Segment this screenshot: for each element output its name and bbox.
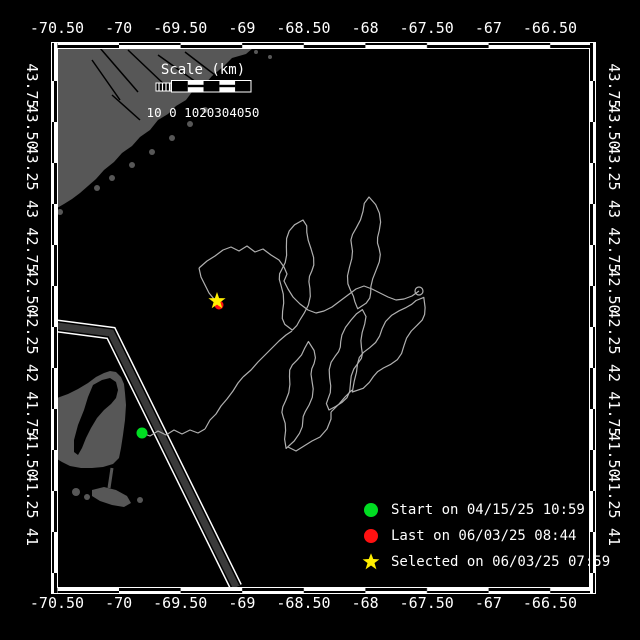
track-segment[interactable] [205, 377, 243, 429]
left-axis-label: 43.50 [23, 104, 41, 149]
scalebar-title: Scale (km) [150, 62, 256, 78]
drifter-track[interactable] [142, 197, 425, 451]
island [72, 488, 80, 496]
bottom-axis-label: -67 [475, 594, 502, 612]
left-axis-label: 42 [23, 364, 41, 382]
bottom-axis-label: -69.50 [153, 594, 207, 612]
island [94, 185, 100, 191]
top-axis-label: -69.50 [153, 19, 207, 37]
island [254, 50, 258, 54]
left-axis-label: 42.25 [23, 309, 41, 354]
track-loop[interactable] [282, 342, 316, 449]
island [109, 175, 115, 181]
legend-selected-label: Selected on 06/03/25 07:59 [391, 554, 610, 570]
right-axis-label: 42.25 [605, 309, 623, 354]
left-axis-label: 41 [23, 528, 41, 546]
bottom-axis-label: -70 [105, 594, 132, 612]
right-axis-label: 43.25 [605, 145, 623, 190]
top-axis-label: -70.50 [30, 19, 84, 37]
top-axis-label: -68.50 [276, 19, 330, 37]
legend-start-label: Start on 04/15/25 10:59 [391, 502, 585, 518]
island [84, 494, 90, 500]
right-axis-label: 43 [605, 200, 623, 218]
top-axis-label: -66.50 [523, 19, 577, 37]
track-segment[interactable] [199, 268, 217, 303]
track-segment[interactable] [288, 412, 331, 451]
left-axis-label: 42.50 [23, 268, 41, 313]
right-axis-label: 42 [605, 364, 623, 382]
left-axis-label: 41.50 [23, 432, 41, 477]
track-loop[interactable] [279, 220, 314, 330]
track-loop[interactable] [326, 310, 366, 410]
top-axis-label: -70 [105, 19, 132, 37]
left-axis-label: 43 [23, 200, 41, 218]
island [149, 149, 155, 155]
scalebar-hatch [156, 83, 171, 91]
left-axis-label: 43.25 [23, 145, 41, 190]
legend-row-last: Last on 06/03/25 08:44 [364, 523, 610, 549]
start-position-marker[interactable] [137, 428, 148, 439]
island [169, 135, 175, 141]
island [268, 55, 272, 59]
right-axis-label: 42.75 [605, 227, 623, 272]
top-axis-label: -69 [228, 19, 255, 37]
left-axis-label: 42.75 [23, 227, 41, 272]
top-axis-label: -67 [475, 19, 502, 37]
left-axis-label: 43.75 [23, 63, 41, 108]
right-axis-label: 41.75 [605, 391, 623, 436]
island [187, 121, 193, 127]
island-arm [92, 487, 131, 507]
legend-last-label: Last on 06/03/25 08:44 [391, 528, 576, 544]
legend-row-selected: Selected on 06/03/25 07:59 [364, 549, 610, 575]
bottom-axis-label: -66.50 [523, 594, 577, 612]
left-axis-label: 41.25 [23, 473, 41, 518]
bottom-axis-label: -69 [228, 594, 255, 612]
island [137, 497, 143, 503]
legend: Start on 04/15/25 10:59 Last on 06/03/25… [364, 497, 610, 575]
track-segment[interactable] [243, 331, 292, 377]
right-axis-label: 41.50 [605, 432, 623, 477]
monomoy-spit [109, 468, 112, 488]
right-axis-label: 43.75 [605, 63, 623, 108]
bottom-axis-label: -67.50 [400, 594, 454, 612]
track-segment[interactable] [142, 429, 205, 436]
track-segment[interactable] [331, 390, 352, 412]
top-axis-label: -68 [352, 19, 379, 37]
left-axis-label: 41.75 [23, 391, 41, 436]
bottom-axis-label: -68 [352, 594, 379, 612]
scalebar-segment [204, 81, 220, 92]
top-axis-label: -67.50 [400, 19, 454, 37]
legend-row-start: Start on 04/15/25 10:59 [364, 497, 610, 523]
scalebar-stripe [188, 85, 204, 87]
start-marker-icon [364, 503, 378, 517]
right-axis-label: 42.50 [605, 268, 623, 313]
last-marker-icon [364, 529, 378, 543]
bottom-axis-label: -68.50 [276, 594, 330, 612]
scalebar-tick-labels: 10 0 1020304050 [146, 105, 260, 120]
scalebar-segment [235, 81, 251, 92]
selected-marker-icon [362, 553, 380, 571]
scalebar-segment [172, 81, 188, 92]
map-window: -70.50-70-69.50-69-68.50-68-67.50-67-66.… [0, 0, 640, 640]
right-axis-label: 43.50 [605, 104, 623, 149]
scalebar-stripe [219, 85, 235, 87]
island [129, 162, 135, 168]
bottom-axis-label: -70.50 [30, 594, 84, 612]
